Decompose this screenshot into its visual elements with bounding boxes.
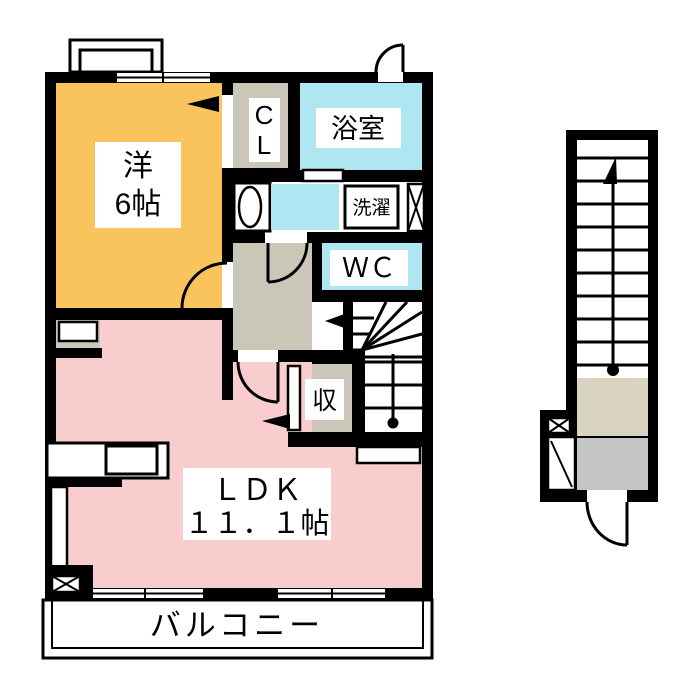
common-stairwell <box>540 130 658 545</box>
stair-entry-floor <box>312 302 343 357</box>
meter-box-x <box>548 418 570 433</box>
kitchen-sink <box>106 446 157 474</box>
western-room-label: 洋 6帖 <box>95 142 181 228</box>
washstand-counter <box>271 184 339 230</box>
bathroom-door-sill <box>303 170 343 181</box>
svg-text:C: C <box>255 100 274 130</box>
ldk-alcove <box>56 320 100 348</box>
closet-label: C L <box>249 98 280 162</box>
svg-text:ＷＣ: ＷＣ <box>342 253 396 283</box>
window-bottom-right <box>278 589 385 598</box>
wall-entry-bar <box>343 302 353 357</box>
floorplan-page: 洗濯 <box>0 0 700 700</box>
stair-landing <box>577 378 648 437</box>
wall-stair-bottom <box>288 432 433 447</box>
room-hallway <box>233 243 312 352</box>
balcony-label: バルコニー <box>150 608 324 643</box>
pipe-space-bottom-left <box>45 565 93 600</box>
svg-text:１１．１帖: １１．１帖 <box>184 507 329 540</box>
svg-text:浴室: 浴室 <box>331 114 385 144</box>
svg-text:ＬＤＫ: ＬＤＫ <box>212 474 302 507</box>
window-top <box>117 73 210 82</box>
balcony: バルコニー <box>43 600 432 658</box>
bay-window <box>70 40 162 72</box>
opening-washroom-door <box>265 232 307 243</box>
meter-box-door <box>548 437 575 490</box>
wall-kitchen-stub <box>46 348 102 358</box>
understair-counter <box>357 447 420 463</box>
opening-bath-vent <box>378 72 403 82</box>
svg-text:L: L <box>257 130 271 160</box>
bath-vent-door-swing <box>376 45 403 72</box>
floorplan-drawing: 洗濯 <box>0 0 700 700</box>
opening-ldk-door <box>238 350 278 362</box>
svg-text:6帖: 6帖 <box>115 188 162 221</box>
svg-text:洋: 洋 <box>123 150 153 183</box>
laundry-label: 洗濯 <box>352 197 390 219</box>
entrance-door <box>587 490 627 545</box>
window-bottom-left <box>87 589 203 598</box>
opening-western-sliding <box>222 95 233 168</box>
laundry-space: 洗濯 <box>345 186 398 228</box>
bathroom-label: 浴室 <box>316 108 401 148</box>
storage-label: 収 <box>305 379 344 420</box>
window-washroom-x <box>408 184 424 231</box>
entry-porch <box>577 437 648 490</box>
washbasin <box>234 183 270 231</box>
main-unit: 洗濯 <box>45 40 433 600</box>
wc-label: ＷＣ <box>330 250 408 286</box>
svg-text:収: 収 <box>312 387 337 415</box>
opening-western-door <box>222 262 233 308</box>
ldk-label: ＬＤＫ １１．１帖 <box>183 468 331 540</box>
